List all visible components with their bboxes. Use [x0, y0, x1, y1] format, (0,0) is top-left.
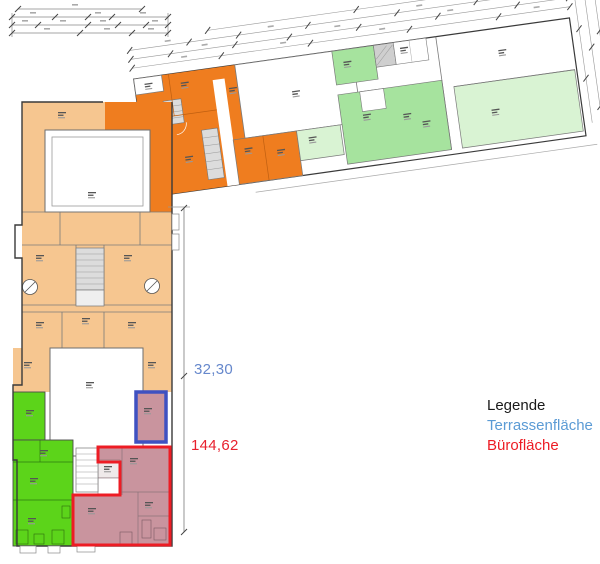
left-building	[13, 102, 179, 553]
floor-plan-page: 32,30 144,62 Legende Terrassenfläche Bür…	[0, 0, 600, 564]
legend: Legende Terrassenfläche Bürofläche	[487, 396, 593, 456]
terrace-room-outline	[136, 392, 166, 442]
courtyard	[45, 130, 150, 212]
office-measurement-label: 144,62	[191, 437, 239, 454]
upper-staircase	[76, 248, 104, 306]
legend-title: Legende	[487, 396, 593, 416]
upper-wing	[123, 0, 600, 207]
lower-staircase	[76, 448, 98, 492]
legend-item-terrace: Terrassenfläche	[487, 416, 593, 436]
legend-item-office: Bürofläche	[487, 436, 593, 456]
terrace-measurement-label: 32,30	[194, 361, 233, 378]
floor-plan-drawing	[0, 0, 600, 564]
